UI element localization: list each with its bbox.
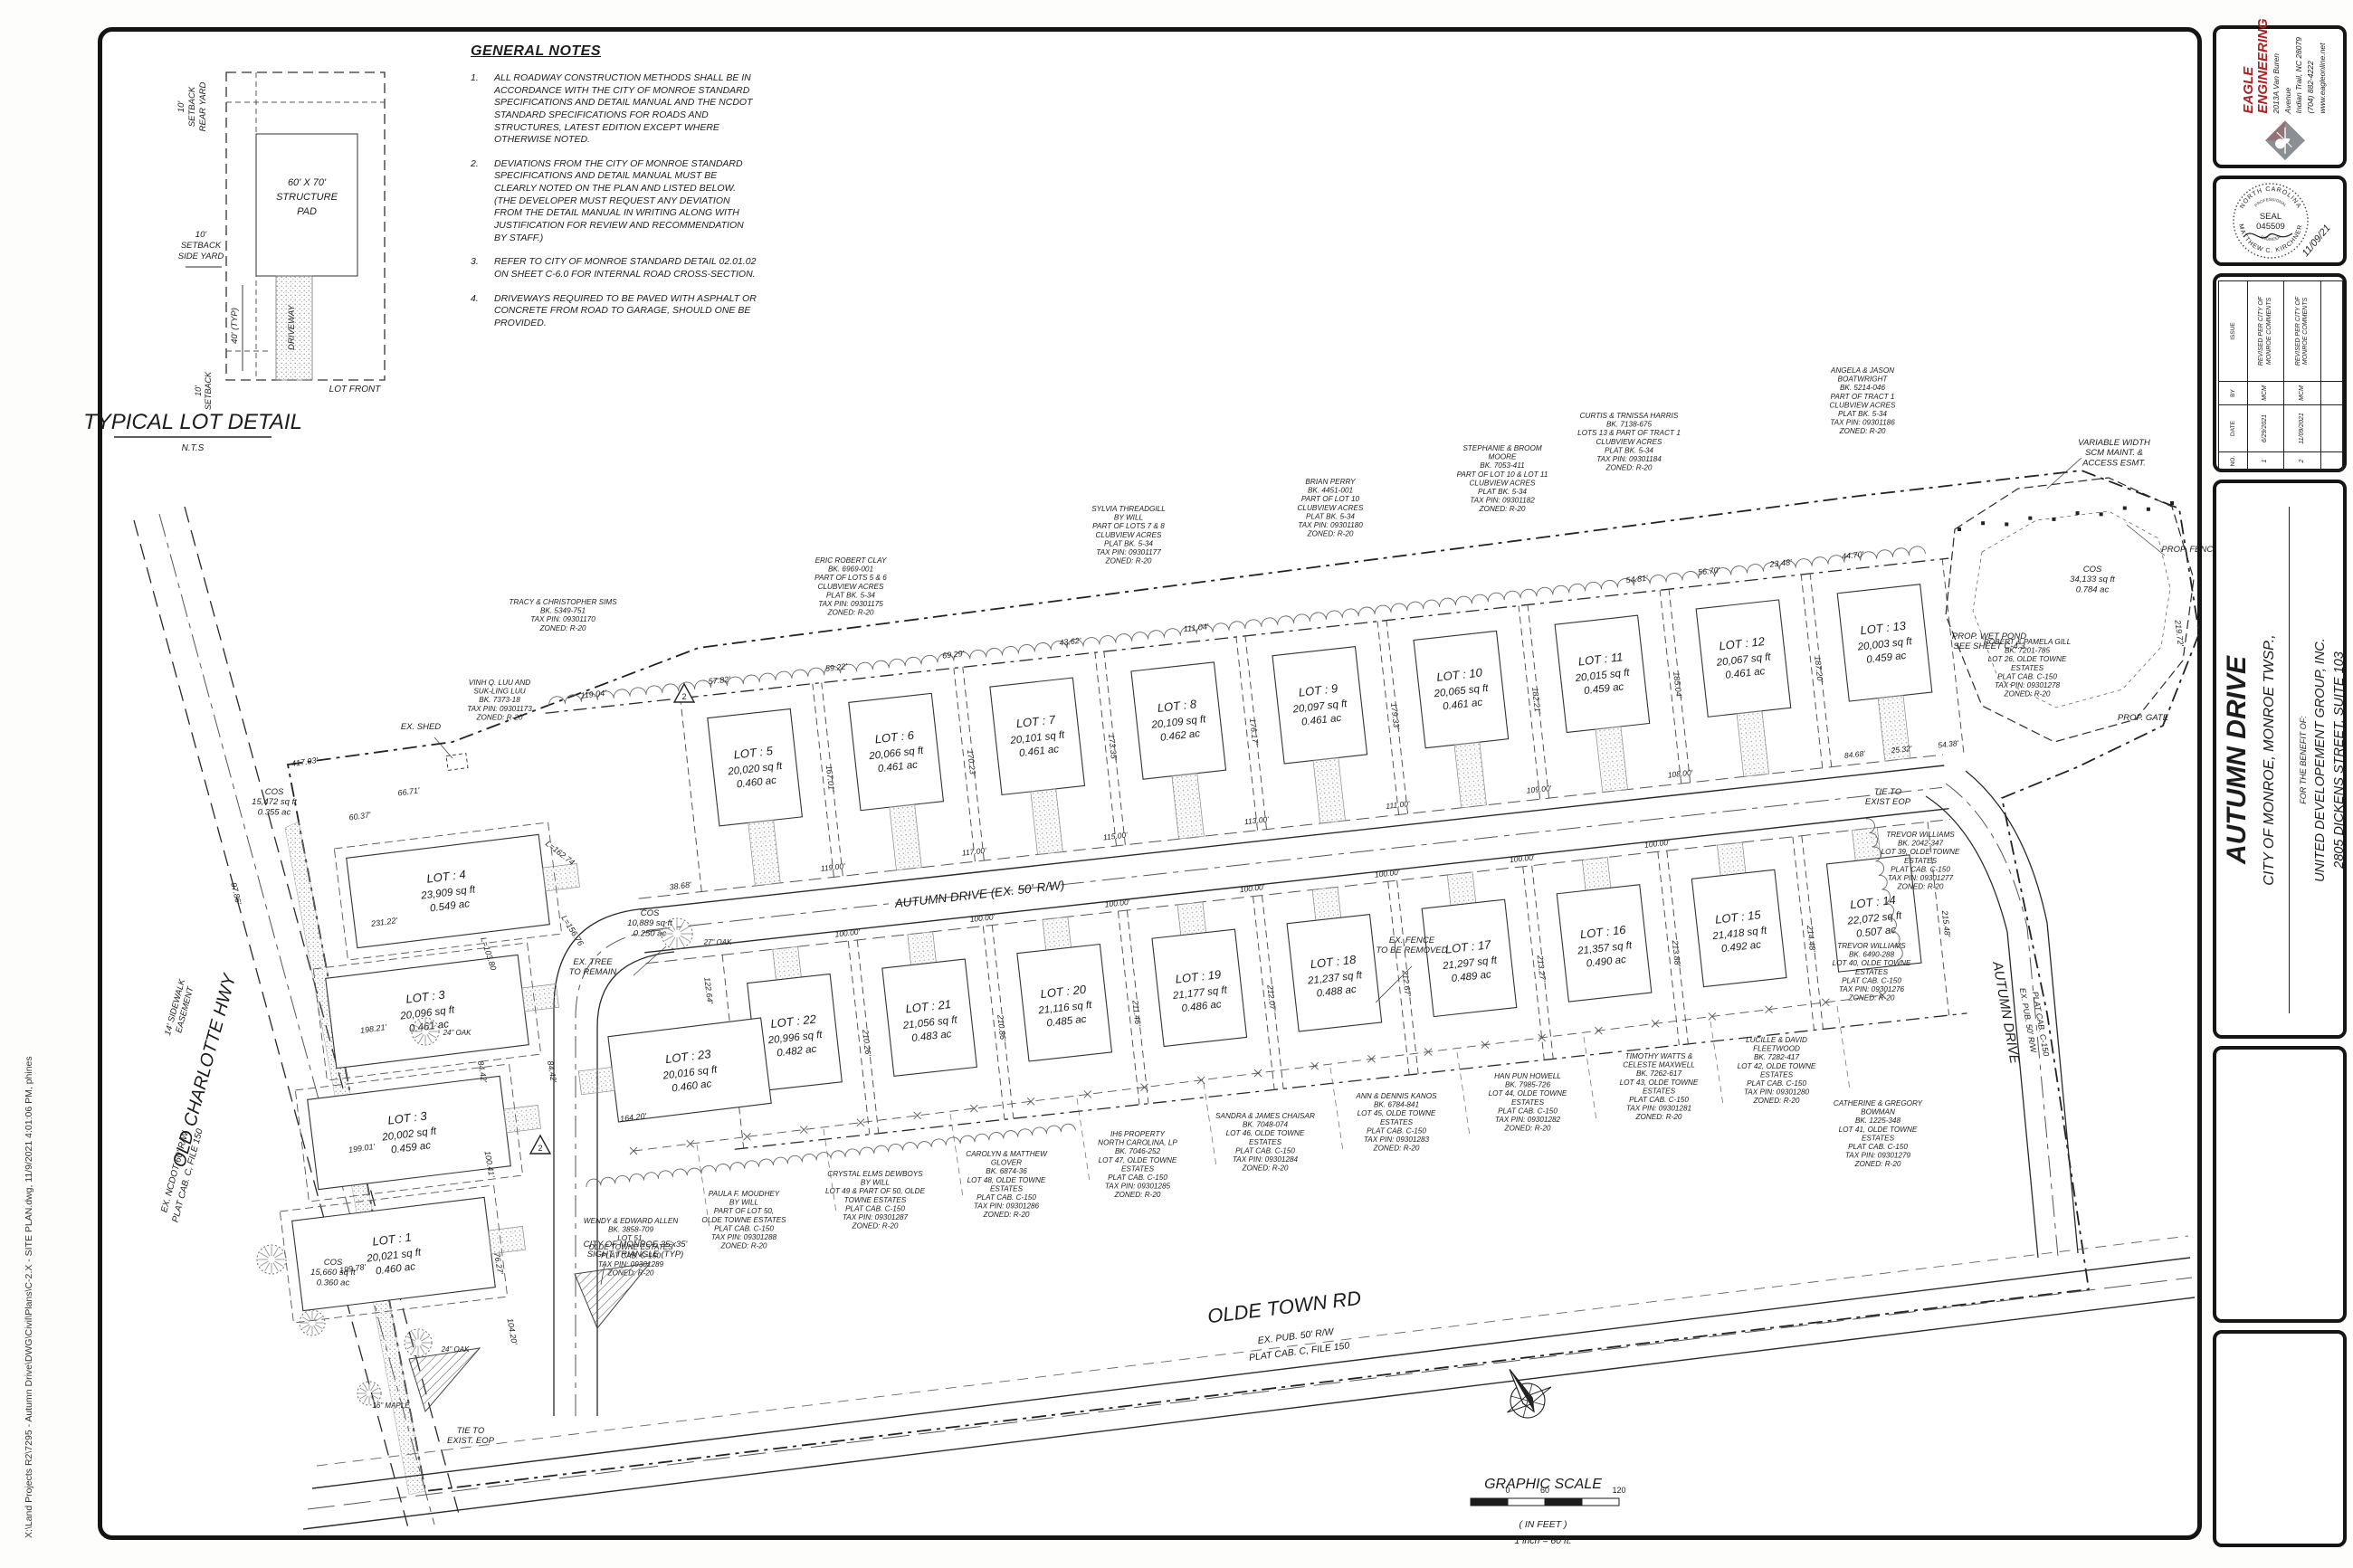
tie-to-eop-callout: EXIST EOP (1865, 797, 1911, 807)
neighbor-parcel-label: PLAT BK. 5-34 (1104, 539, 1153, 547)
tree-branch (314, 1326, 319, 1333)
neighbor-parcel-label: ESTATES (1760, 1070, 1794, 1079)
neighbor-parcel-label: TIMOTHY WATTS &CELESTE MAXWELLBK. 7262-6… (1620, 1052, 1699, 1121)
neighbor-parcel-label: TAX PIN: 09301281 (1626, 1105, 1691, 1113)
scm-easement-callout: VARIABLE WIDTH (2078, 438, 2150, 448)
neighbor-parcel-label: ESTATES (1643, 1087, 1676, 1095)
neighbor-parcel-label: BK. 7046-252 (1115, 1147, 1161, 1155)
neighbor-parcel-label: TAX PIN: 09301180 (1298, 521, 1363, 529)
lot-side-line (1667, 851, 1689, 1044)
lot-side-line (1528, 604, 1549, 798)
neighbor-parcel-label: ZONED: R-20 (2004, 690, 2051, 698)
leader-line (2127, 525, 2165, 556)
sidewalk-easement-callout: 14' SIDEWALKEASEMENT (163, 977, 197, 1039)
revision-row-by: MCM (2248, 381, 2284, 404)
neighbor-parcel-label: ESTATES (1904, 857, 1938, 865)
general-note: 4. DRIVEWAYS REQUIRED TO BE PAVED WITH A… (471, 293, 757, 330)
dimension-label: 54.81' (1625, 574, 1648, 585)
tie-to-eop-callout: TIE TO (1874, 787, 1902, 797)
dimension-label: 215.48' (1940, 909, 1952, 937)
lot-parcel: LOT : 1821,237 sq ft0.488 ac (1262, 881, 1409, 1088)
neighbor-parcel-label: ANGELA & JASON (1830, 366, 1894, 375)
sheet-number-block: Sheet C-2.0 (2213, 1330, 2347, 1547)
revision-delta-number: 2 (538, 1144, 542, 1153)
neighbor-parcel-label: PART OF LOT 50, (714, 1207, 774, 1215)
dimension-label: 213.27' (1536, 954, 1548, 982)
leader-line (633, 946, 666, 975)
neighbor-parcel-label: ZONED: R-20 (720, 1242, 767, 1250)
neighbor-parcel-label: BRIAN PERRYBK. 4451-001PART OF LOT 10CLU… (1298, 478, 1364, 538)
neighbor-parcel-label: CATHERINE & GREGORY (1834, 1099, 1923, 1107)
dimension-label: 100.00' (969, 912, 995, 924)
neighbor-parcel-label: ZONED: R-20 (1307, 530, 1354, 538)
seal-word: SEAL (2260, 212, 2282, 222)
lot-parcel: LOT : 920,097 sq ft0.461 ac (1245, 622, 1399, 830)
lot-side-line (1386, 621, 1408, 814)
ex-shed-symbol (446, 754, 468, 771)
tree-branch (307, 1326, 311, 1333)
neighbor-parcel-label: ZONED: R-20 (827, 609, 874, 617)
detail-front-setback: SETBACK (204, 371, 213, 410)
tree-branch (315, 1317, 322, 1322)
autumn-loop-edge (554, 908, 647, 1416)
revision-row-empty (2321, 404, 2343, 451)
neighbor-parcel-label: ESTATES (1121, 1164, 1155, 1173)
tie-to-eop-callout: TIE TOEXIST. EOP (447, 1426, 495, 1446)
dimension-label: 100.00' (1509, 852, 1535, 864)
neighbor-parcel-label: TAX PIN: 09301175 (818, 600, 883, 608)
divider (2289, 507, 2290, 1012)
svg-text:PROFESSIONAL: PROFESSIONAL (2253, 197, 2288, 208)
tree-branch (273, 1262, 278, 1270)
tree-branch (274, 1253, 282, 1258)
scale-bar-segment (1508, 1498, 1545, 1506)
neighbor-parcel-label: TAX PIN: 09301284 (1233, 1155, 1299, 1164)
neighbor-parcel-label: LOT 26, OLDE TOWNE (1988, 655, 2067, 663)
driveway (748, 820, 781, 886)
neighbor-parcel-label: PLAT CAB. C-150 (1891, 865, 1950, 873)
neighbor-parcel-label: TREVOR WILLIAMS (1886, 831, 1955, 839)
tree-branch (302, 1325, 310, 1329)
neighbor-parcel-label: ERIC ROBERT CLAYBK. 6969-001PART OF LOTS… (814, 556, 887, 617)
neighbor-parcel-label: NORTH CAROLINA, LP (1098, 1139, 1177, 1147)
lot-parcel: LOT : 620,066 sq ft0.461 ac (822, 668, 976, 876)
seal-number: 045509 (2256, 222, 2285, 232)
tree-branch (679, 937, 684, 946)
project-name: AUTUMN DRIVE (2222, 656, 2253, 864)
detail-pad-label: STRUCTURE (276, 192, 338, 203)
neighbor-parcel-label: ANN & DENNIS KANOSBK. 6784-841LOT 45, OL… (1355, 1092, 1437, 1153)
detail-driveway-label: DRIVEWAY (287, 304, 297, 349)
neighbor-parcel-label: BK. 6490-288 (1849, 951, 1895, 959)
firm-address: 2013A Van Buren Avenue Indian Trail, NC … (2271, 30, 2329, 113)
note-number: 1. (471, 72, 494, 147)
neighbor-parcel-label: ZONED: R-20 (1854, 1160, 1901, 1168)
fence-post (2052, 518, 2055, 521)
neighbor-parcel-label: BK. 7282-417 (1754, 1053, 1800, 1061)
firm-name: EAGLE ENGINEERING (2242, 55, 2271, 113)
scale-in-feet: ( IN FEET ) (1519, 1519, 1567, 1530)
dimension-label: 111.04' (1183, 622, 1209, 633)
neighbor-parcel-label: TAX PIN: 09301280 (1744, 1088, 1810, 1097)
general-note: 3. REFER TO CITY OF MONROE STANDARD DETA… (471, 256, 757, 280)
neighbor-parcel-label: LUCILLE & DAVIDFLEETWOODBK. 7282-417LOT … (1738, 1036, 1816, 1105)
dimension-label: 214.48' (1805, 924, 1817, 952)
neighbor-parcel-label: LOT 41, OLDE TOWNE (1839, 1126, 1918, 1134)
neighbor-parcel-label: BK. 7373-18 (479, 696, 520, 704)
note-text: ALL ROADWAY CONSTRUCTION METHODS SHALL B… (494, 72, 757, 147)
revision-row-empty (2321, 280, 2343, 381)
neighbor-parcel-label: PLAT CAB. C-150 (976, 1193, 1036, 1202)
dimension-label: 212.67' (1400, 969, 1412, 997)
note-text: DEVIATIONS FROM THE CITY OF MONROE STAND… (494, 158, 757, 244)
neighbor-parcel-label: SUK-LING LUU (473, 688, 525, 696)
neighbor-parcel-label: SYLVIA THREADGILLBY WILLPART OF LOTS 7 &… (1091, 505, 1166, 565)
cos-label: 0.784 ac (2076, 584, 2110, 594)
neighbor-parcel-label: BK. 7262-617 (1636, 1069, 1682, 1078)
tree-branch (372, 1388, 379, 1392)
neighbor-parcel-label: LOT 46, OLDE TOWNE (1226, 1129, 1305, 1137)
tree-branch (679, 921, 684, 930)
driveway (1454, 742, 1487, 808)
neighbor-separator (950, 1114, 963, 1197)
neighbor-parcel-label: TAX PIN: 09301278 (1995, 681, 2061, 689)
neighbor-parcel-label: CLUBVIEW ACRES (1096, 531, 1162, 539)
neighbor-parcel-label: STEPHANIE & BROOM (1462, 444, 1542, 452)
neighbor-parcel-label: PLAT BK. 5-34 (1478, 488, 1527, 496)
tie-to-eop-callout: TIE TOEXIST EOP (1865, 787, 1911, 807)
neighbor-parcel-label: LOT 39, OLDE TOWNE (1881, 848, 1960, 856)
lot-side-line (1262, 896, 1283, 1089)
lot-side-line (1942, 559, 1964, 753)
neighbor-parcel-label: SYLVIA THREADGILL (1091, 505, 1166, 513)
lot-side-line (1669, 589, 1691, 783)
tree-branch (407, 1345, 415, 1349)
lot-side-line (963, 667, 985, 860)
typical-lot-detail-title: TYPICAL LOT DETAIL (83, 410, 302, 434)
neighbor-parcel-label: BK. 7138-675 (1606, 421, 1653, 429)
project-location: CITY OF MONROE, MONROE TWSP., (2262, 634, 2278, 885)
autumn-right-edge (1966, 771, 2078, 1253)
ex-tree-callout: EX. TREETO REMAIN (569, 957, 617, 977)
neighbor-parcel-label: ZONED: R-20 (539, 624, 586, 632)
neighbor-parcel-label: BK. 7985-726 (1505, 1081, 1551, 1089)
neighbor-parcel-label: ZONED: R-20 (1848, 994, 1895, 1003)
tree-branch (364, 1396, 367, 1403)
dimension-label: 210.26' (861, 1028, 872, 1056)
neighbor-parcel-label: CELESTE MAXWELL (1623, 1061, 1695, 1069)
scm-easement-callout: VARIABLE WIDTHSCM MAINT. &ACCESS ESMT. (2078, 438, 2150, 468)
driveway (1172, 774, 1205, 840)
revision-table: NO. DATE BY ISSUE 1 6/29/2021 MCM REVISE… (2218, 280, 2343, 470)
detail-front-setback: 10' (194, 385, 203, 396)
drawing-sheet: X:\Land Projects R2\7295 - Autumn Drive\… (0, 0, 2353, 1568)
tree-branch (302, 1317, 310, 1322)
cos-label: COS (2083, 565, 2102, 575)
neighbor-parcel-label: TAX PIN: 09301279 (1845, 1152, 1911, 1160)
lot-side-line (1810, 574, 1832, 767)
driveway (489, 1226, 526, 1253)
neighbor-parcel-label: ANGELA & JASONBOATWRIGHTBK. 5214-046PART… (1830, 366, 1896, 435)
driveway (773, 946, 802, 980)
neighbor-parcel-label: TAX PIN: 09301283 (1364, 1136, 1430, 1144)
neighbor-separator (1330, 1068, 1343, 1151)
tree-symbol (300, 1310, 325, 1335)
neighbor-separator (1204, 1083, 1216, 1166)
client-line: 2805 DICKENS STREET, SUITE 103 (2330, 638, 2349, 882)
dimension-label: 84.68' (1843, 749, 1865, 760)
neighbor-parcel-label: IH6 PROPERTYNORTH CAROLINA, LPBK. 7046-2… (1098, 1130, 1177, 1199)
revision-row-no: 1 (2248, 451, 2284, 470)
tree-branch (364, 1384, 367, 1392)
tree-branch (360, 1395, 367, 1399)
neighbor-parcel-label: CLUBVIEW ACRES (1470, 479, 1536, 487)
project-block: AUTUMN DRIVE CITY OF MONROE, MONROE TWSP… (2213, 480, 2347, 1039)
dimension-label: 54.38' (1938, 738, 1959, 749)
tree-branch (360, 1388, 367, 1392)
neighbor-parcel-label: TRACY & CHRISTOPHER SIMSBK. 5349-751TAX … (509, 598, 617, 632)
tree-branch (412, 1332, 416, 1340)
neighbor-parcel-label: CAROLYN & MATTHEWGLOVERBK. 6874-36LOT 48… (966, 1150, 1048, 1219)
neighbor-parcel-label: FLEETWOOD (1753, 1045, 1800, 1053)
note-number: 4. (471, 293, 494, 330)
firm-address-line: 2013A Van Buren Avenue (2271, 30, 2294, 113)
sight-triangle (575, 1263, 650, 1328)
revision-header-no: NO. (2219, 451, 2248, 470)
fence-post (1981, 521, 1985, 525)
autumn-loop-edge (597, 952, 674, 1416)
neighbor-parcel-label: HAN PUN HOWELLBK. 7985-726LOT 44, OLDE T… (1489, 1072, 1567, 1133)
general-notes: GENERAL NOTES 1. ALL ROADWAY CONSTRUCTIO… (471, 43, 757, 342)
neighbor-parcel-label: BY WILL (861, 1179, 890, 1187)
neighbor-parcel-label: PLAT CAB. C-150 (1367, 1126, 1426, 1135)
neighbor-parcel-label: ZONED: R-20 (1839, 427, 1886, 435)
revision-header-date: DATE (2219, 404, 2248, 451)
scale-tick: 60 (1540, 1486, 1549, 1495)
driveway (504, 1105, 541, 1132)
neighbor-parcel-label: VINH Q. LUU AND (469, 679, 530, 687)
neighbor-parcel-label: PLAT CAB. C-150 (1997, 672, 2057, 680)
general-note: 1. ALL ROADWAY CONSTRUCTION METHODS SHAL… (471, 72, 757, 147)
tree-branch (265, 1262, 270, 1270)
dimension-label: 59.22' (824, 661, 847, 673)
revision-block: NO. DATE BY ISSUE 1 6/29/2021 MCM REVISE… (2213, 273, 2347, 472)
tree-symbol (257, 1245, 286, 1274)
neighbor-parcel-label: PLAT CAB. C-150 (1235, 1146, 1295, 1155)
client-address: UNITED DEVELOPEMENT GROUP, INC. 2805 DIC… (2311, 638, 2353, 882)
revision-header-issue: ISSUE (2219, 280, 2248, 381)
engineer-seal-block: NORTH CAROLINA MATTHEW C. KIRCHNER PROFE… (2213, 176, 2347, 266)
dimension-label: 97.86' (229, 881, 243, 905)
scm-easement-callout: ACCESS ESMT. (2081, 458, 2146, 468)
benefit-label: FOR THE BENEFIT OF: (2299, 716, 2308, 804)
neighbor-parcel-label: CLUBVIEW ACRES (818, 583, 884, 591)
neighbor-parcel-label: ZONED: R-20 (1373, 1145, 1420, 1153)
lot-parcel: LOT : 1721,297 sq ft0.489 ac (1397, 867, 1545, 1074)
dimension-label: 43.62' (1059, 636, 1081, 648)
dimension-label: 176.17' (1248, 717, 1260, 745)
revision-row-issue: REVISED PER CITY OF MONROE COMMENTS (2248, 280, 2284, 381)
neighbor-parcel-label: TRACY & CHRISTOPHER SIMS (509, 598, 617, 606)
dimension-label: 56.70' (1698, 565, 1720, 577)
tree-branch (273, 1248, 278, 1256)
lot-parcel: LOT : 1020,065 sq ft0.461 ac (1386, 606, 1540, 814)
neighbor-parcel-label: BOWMAN (1861, 1108, 1895, 1117)
neighbor-parcel-label: BK. 4451-001 (1308, 487, 1353, 495)
site-plan-canvas: 60' X 70'STRUCTUREPAD10'SETBACKREAR YARD… (0, 0, 2353, 1568)
neighbor-parcel-label: TAX PIN: 09301184 (1596, 455, 1662, 463)
driveway (1717, 842, 1746, 876)
neighbor-parcel-label: CRYSTAL ELMS DEWBOYSBY WILLLOT 49 & PART… (825, 1170, 926, 1231)
dimension-label: 69.29' (942, 649, 965, 660)
neighbor-parcel-label: PLAT BK. 5-34 (1306, 512, 1355, 520)
neighbor-parcel-label: PLAT CAB. C-150 (1498, 1107, 1558, 1115)
neighbor-parcel-label: CLUBVIEW ACRES (1596, 438, 1662, 446)
neighbor-parcel-label: BK. 6969-001 (828, 565, 873, 574)
neighbor-parcel-label: LOT 44, OLDE TOWNE (1489, 1089, 1567, 1098)
dimension-label: 38.68' (669, 880, 692, 892)
lot-parcel: LOT : 720,101 sq ft0.461 ac (963, 652, 1117, 860)
lot-side-line (1104, 651, 1126, 845)
tree-branch (307, 1313, 311, 1320)
detail-structure-pad (256, 134, 357, 276)
lot-side-line (1245, 636, 1267, 830)
client-line: UNITED DEVELOPEMENT GROUP, INC. (2311, 638, 2330, 882)
tree-branch (412, 1345, 416, 1354)
scale-bar-segment (1471, 1498, 1508, 1506)
neighbor-parcel-label: PAULA F. MOUDHEYBY WILLPART OF LOT 50,OL… (701, 1190, 786, 1250)
tie-to-eop-callout: TIE TO (457, 1426, 485, 1436)
neighbor-separator (1077, 1098, 1090, 1182)
dimension-label: 23.48' (1768, 557, 1792, 569)
tree-branch (371, 1384, 375, 1392)
prop-fence-callout: PROP. FENCE (2161, 545, 2219, 555)
neighbor-parcel-label: ESTATES (1855, 968, 1889, 976)
neighbor-parcel-label: BK. 6874-36 (986, 1167, 1027, 1175)
neighbor-parcel-label: BOATWRIGHT (1838, 375, 1889, 384)
dimension-label: 173.35' (1107, 734, 1119, 761)
neighbor-parcel-label: TAX PIN: 09301276 (1839, 985, 1905, 993)
fence-post (2076, 511, 2080, 515)
neighbor-parcel-label: BK. 6784-841 (1374, 1101, 1419, 1109)
neighbor-parcel-label: HAN PUN HOWELL (1494, 1072, 1561, 1080)
driveway (1582, 857, 1611, 890)
tree-branch (421, 1336, 429, 1341)
neighbor-parcel-label: ZONED: R-20 (1897, 883, 1944, 891)
dimension-label: 100.00' (1374, 868, 1400, 879)
lot-parcel: LOT : 2021,116 sq ft0.485 ac (992, 911, 1139, 1118)
fence-post (2147, 508, 2150, 511)
neighbor-parcel-label: PLAT CAB. C-150 (1848, 1143, 1908, 1151)
neighbor-parcel-label: BY WILL (1114, 514, 1143, 522)
detail-forty-typ: 40' (TYP) (230, 308, 240, 344)
fence-post (2028, 517, 2032, 520)
dimension-label: 417.03' (291, 755, 319, 768)
neighbor-parcel-label: WENDY & EDWARD ALLEN (584, 1217, 679, 1225)
neighbor-parcel-label: PLAT CAB. C-150 (714, 1224, 774, 1232)
neighbor-parcel-label: ERIC ROBERT CLAY (815, 556, 887, 565)
neighbor-parcel-label: CRYSTAL ELMS DEWBOYS (827, 1170, 923, 1178)
dimension-label: 212.07' (1265, 984, 1277, 1012)
neighbor-parcel-label: ZONED: R-20 (1114, 1191, 1161, 1199)
tree-symbol (405, 1329, 432, 1356)
dimension-label: 211.46' (1130, 999, 1142, 1027)
cos-label: 15,472 sq ft (252, 797, 297, 807)
general-notes-title: GENERAL NOTES (471, 43, 757, 60)
neighbor-parcel-label: SANDRA & JAMES CHAISARBK. 7048-074LOT 46… (1215, 1112, 1315, 1173)
dimension-label: 100.00' (1104, 898, 1130, 909)
note-text: DRIVEWAYS REQUIRED TO BE PAVED WITH ASPH… (494, 293, 757, 330)
lot-parcel: LOT : 1120,015 sq ft0.459 ac (1528, 590, 1681, 798)
neighbor-parcel-label: TAX PIN: 09301277 (1888, 874, 1954, 882)
neighbor-parcel-label: ZONED: R-20 (476, 713, 523, 721)
tree-branch (421, 1345, 429, 1349)
detail-pad-label: 60' X 70' (288, 177, 327, 188)
dimension-label: 60.37' (348, 810, 372, 822)
neighbor-parcel-label: PLAT CAB. C-150 (845, 1204, 905, 1212)
tree-branch (681, 927, 690, 932)
ex-fence-callout: TO BE REMOVED (1376, 946, 1447, 955)
neighbor-parcel-label: PART OF LOTS 5 & 6 (814, 574, 887, 582)
note-text: REFER TO CITY OF MONROE STANDARD DETAIL … (494, 256, 757, 280)
eagle-logo-icon (2262, 119, 2308, 162)
lot-parcel: LOT : 1320,003 sq ft0.459 ac (1810, 559, 1964, 767)
neighbor-parcel-label: BK. 3858-709 (608, 1226, 654, 1234)
lot-parcel: LOT : 820,109 sq ft0.462 ac (1104, 637, 1258, 845)
note-number: 2. (471, 158, 494, 244)
neighbor-parcel-label: TAX PIN: 09301186 (1830, 419, 1895, 427)
neighbor-parcel-label: BY WILL (729, 1199, 758, 1207)
lot-side-line (1532, 866, 1554, 1060)
neighbor-parcel-label: ANN & DENNIS KANOS (1355, 1092, 1437, 1100)
sheet-title-block: SITE PLAN DESIGNED BY DPH DRAWN BY DPH C… (2213, 1046, 2347, 1323)
tree-branch (274, 1261, 282, 1266)
fence-post (2123, 507, 2127, 510)
neighbor-parcel-label: ESTATES (2011, 664, 2044, 672)
neighbor-parcel-label: ZONED: R-20 (983, 1211, 1030, 1219)
neighbor-parcel-label: TAX PIN: 09301177 (1096, 548, 1161, 556)
driveway (890, 804, 922, 870)
dimension-label: 100.00' (1644, 838, 1671, 850)
dimension-label: 167.01' (824, 765, 836, 792)
neighbor-parcel-label: LOTS 13 & PART OF TRACT 1 (1577, 429, 1681, 437)
lot-parcel: LOT : 1220,067 sq ft0.461 ac (1669, 575, 1823, 783)
lot-side-line (1397, 880, 1419, 1074)
neighbor-parcel-label: PAULA F. MOUDHEY (709, 1190, 780, 1198)
dimension-label: 170.23' (966, 749, 977, 776)
dimension-label: 66.71' (397, 785, 421, 797)
tree-branch (260, 1261, 268, 1266)
neighbor-parcel-label: VINH Q. LUU ANDSUK-LING LUUBK. 7373-18TA… (467, 679, 532, 721)
neighbor-parcel-label: LOT 42, OLDE TOWNE (1738, 1062, 1816, 1070)
revision-row-date: 6/29/2021 (2248, 404, 2284, 451)
wet-pond-outline (1946, 478, 2194, 742)
neighbor-parcel-label: LOT 43, OLDE TOWNE (1620, 1079, 1699, 1087)
tree-branch (420, 1332, 424, 1340)
tree-label: 27" OAK (703, 938, 733, 946)
lot-side-line (857, 940, 879, 1134)
neighbor-parcel-label: PART OF LOT 10 (1301, 495, 1360, 503)
revision-row-by: MCM (2284, 381, 2320, 404)
lot-parcel: LOT : 2320,016 sq ft0.460 ac (575, 1018, 771, 1126)
olde-town-rd-label: OLDE TOWN RD (1206, 1287, 1363, 1328)
neighbor-parcel-label: ZONED: R-20 (1753, 1097, 1800, 1105)
cos-label: COS (641, 908, 660, 918)
revision-row-empty (2321, 451, 2343, 470)
neighbor-parcel-label: LOT 48, OLDE TOWNE (967, 1176, 1046, 1184)
neighbor-separator (1457, 1052, 1470, 1136)
neighbor-parcel-label: BK. 5214-046 (1840, 384, 1886, 392)
